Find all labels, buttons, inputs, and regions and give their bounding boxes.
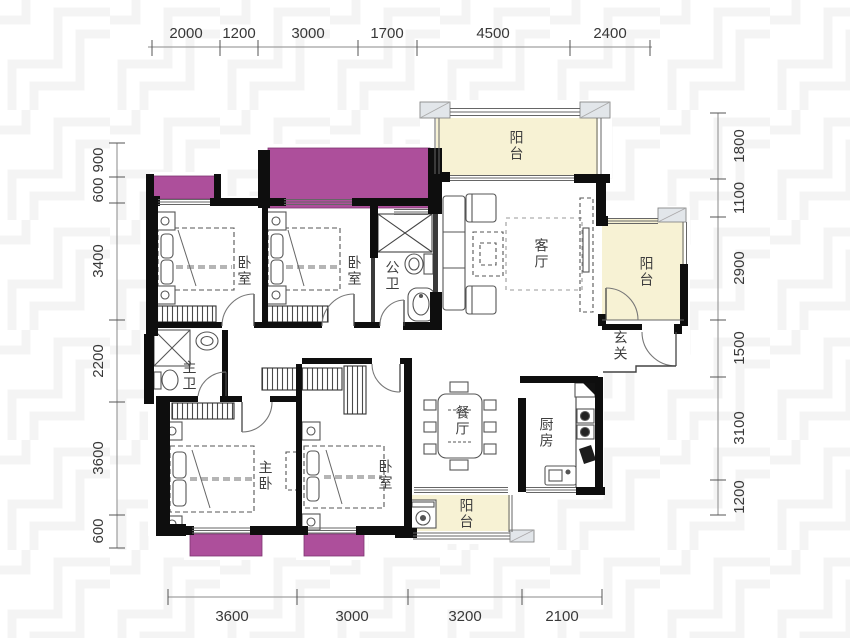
room-label-balcony-top: 阳台 bbox=[508, 130, 523, 162]
dim-label: 3000 bbox=[335, 608, 368, 625]
dim-label: 2000 bbox=[169, 25, 202, 42]
dim-label: 1500 bbox=[731, 331, 748, 364]
sink-icon bbox=[196, 332, 218, 350]
floor-plan-canvas: 2000 1200 3000 1700 4500 2400 3600 3000 … bbox=[0, 0, 850, 638]
bay-window-bottom-mid bbox=[304, 534, 364, 556]
room-label-master-bedroom: 主卧 bbox=[257, 460, 272, 492]
dim-label: 1200 bbox=[731, 480, 748, 513]
dim-label: 3600 bbox=[90, 441, 107, 474]
toilet-icon bbox=[405, 254, 433, 274]
dim-label: 1200 bbox=[222, 25, 255, 42]
room-label-entry: 玄关 bbox=[612, 330, 627, 362]
dim-label: 3200 bbox=[448, 608, 481, 625]
room-label-balcony-right: 阳台 bbox=[638, 256, 653, 288]
room-label-kitchen: 厨房 bbox=[538, 417, 553, 449]
pillar-icon bbox=[420, 102, 450, 118]
dim-label: 600 bbox=[90, 177, 107, 202]
dim-label: 3100 bbox=[731, 411, 748, 444]
shaft bbox=[378, 214, 432, 252]
room-label-dining-room: 餐厅 bbox=[454, 405, 469, 437]
toilet-icon bbox=[154, 370, 178, 390]
room-label-living-room: 客厅 bbox=[533, 238, 548, 270]
dim-label: 2200 bbox=[90, 344, 107, 377]
dim-label: 3600 bbox=[215, 608, 248, 625]
room-label-bath-public: 公卫 bbox=[384, 260, 399, 292]
floor-plan-drawing: 2000 1200 3000 1700 4500 2400 3600 3000 … bbox=[0, 0, 850, 638]
dim-label: 1700 bbox=[370, 25, 403, 42]
washing-machine bbox=[410, 500, 436, 528]
bay-window-top-left bbox=[153, 176, 215, 199]
dim-label: 2900 bbox=[731, 251, 748, 284]
pillar-icon bbox=[580, 102, 610, 118]
dim-label: 1800 bbox=[731, 129, 748, 162]
bay-window-bottom-left bbox=[190, 534, 262, 556]
dim-label: 3000 bbox=[291, 25, 324, 42]
room-label-bedroom-c: 卧室 bbox=[377, 459, 392, 491]
dim-label: 4500 bbox=[476, 25, 509, 42]
dim-label: 900 bbox=[90, 147, 107, 172]
room-label-balcony-bottom: 阳台 bbox=[458, 498, 473, 530]
dim-label: 1100 bbox=[731, 182, 748, 214]
room-label-bath-master: 主卫 bbox=[181, 360, 196, 392]
pillar-icon bbox=[658, 208, 686, 222]
dim-label: 2100 bbox=[545, 608, 578, 625]
dim-label: 600 bbox=[90, 518, 107, 543]
room-label-bedroom-b: 卧室 bbox=[346, 255, 361, 287]
dim-label: 3400 bbox=[90, 244, 107, 277]
coffee-table bbox=[473, 232, 503, 276]
room-label-bedroom-a: 卧室 bbox=[236, 255, 251, 287]
pillar-icon bbox=[510, 530, 534, 542]
dim-label: 2400 bbox=[593, 25, 626, 42]
